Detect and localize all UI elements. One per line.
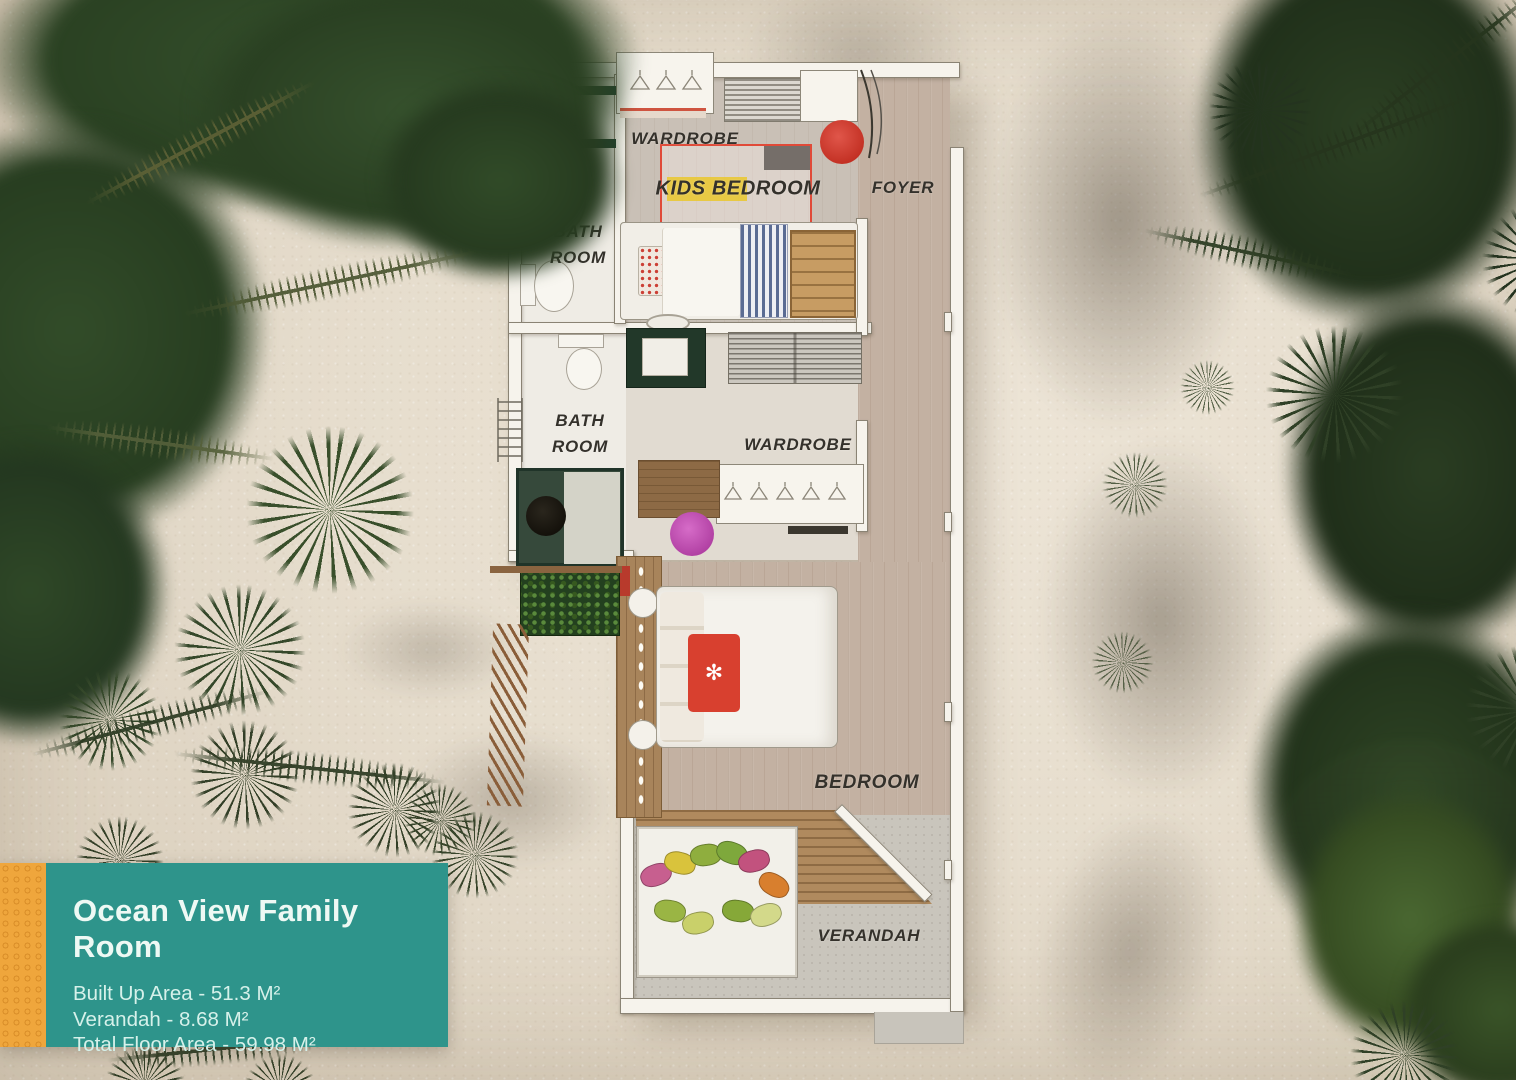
palm-print-icon: ✻ <box>705 661 723 686</box>
aerial-floor-plan-scene: ✻ <box>0 0 1516 1080</box>
privacy-screen <box>487 623 529 806</box>
info-card-stat: Total Floor Area - 59.98 M² <box>73 1032 448 1058</box>
info-card-stat: Built Up Area - 51.3 M² <box>73 981 448 1007</box>
entry-step-pad <box>874 1012 964 1044</box>
info-card-panel: Ocean View Family Room Built Up Area - 5… <box>46 863 448 1047</box>
shower-drain <box>526 496 566 536</box>
room-label-wardrobe-mid: WARDROBE <box>744 435 851 455</box>
bathroom-counter <box>522 86 616 148</box>
round-basin-inner <box>542 184 572 220</box>
room-label-bathroom-mid: BATH ROOM <box>552 408 608 460</box>
wooden-bench <box>790 230 856 318</box>
room-label-verandah: VERANDAH <box>818 926 921 946</box>
foyer-floor <box>858 74 950 562</box>
room-label-bedroom: BEDROOM <box>815 772 920 794</box>
toilet-bowl <box>566 348 602 390</box>
room-label-wardrobe-top: WARDROBE <box>631 129 738 149</box>
info-card-stat: Verandah - 8.68 M² <box>73 1007 448 1033</box>
room-label-foyer: FOYER <box>872 178 935 198</box>
wardrobe-cabinet <box>716 464 864 524</box>
room-label-kids-bedroom: KIDS BEDROOM <box>656 178 821 201</box>
kids-bed-striped-blanket <box>740 224 788 318</box>
shower-tray <box>564 472 620 564</box>
wardrobe-cabinet <box>616 52 714 114</box>
wardrobe-rail <box>788 526 848 534</box>
wall-right <box>950 147 964 1012</box>
pink-stool <box>670 512 714 556</box>
info-card: Ocean View Family Room Built Up Area - 5… <box>0 863 448 1047</box>
planter-box <box>520 572 620 636</box>
louver-bench <box>728 332 862 384</box>
toilet <box>558 334 604 348</box>
desk <box>638 460 720 518</box>
wall-pillar <box>944 512 952 532</box>
wall-pillar <box>944 860 952 880</box>
red-pouf <box>820 120 864 164</box>
slatted-mat <box>724 78 802 122</box>
shelf-red-trim <box>620 108 706 118</box>
vanity-sink <box>642 338 688 376</box>
white-desk <box>800 70 858 122</box>
side-table <box>628 588 658 618</box>
kids-bed-duvet <box>662 228 740 316</box>
side-table <box>628 720 658 750</box>
info-card-accent-strip <box>0 863 46 1047</box>
red-throw: ✻ <box>688 634 740 712</box>
room-label-bathroom-top: BATH ROOM <box>550 219 606 271</box>
wooden-rail <box>490 566 622 573</box>
wall-pillar <box>944 702 952 722</box>
wall-top <box>508 62 960 78</box>
wall-pillar <box>944 312 952 332</box>
info-card-title: Ocean View Family Room <box>73 893 448 965</box>
